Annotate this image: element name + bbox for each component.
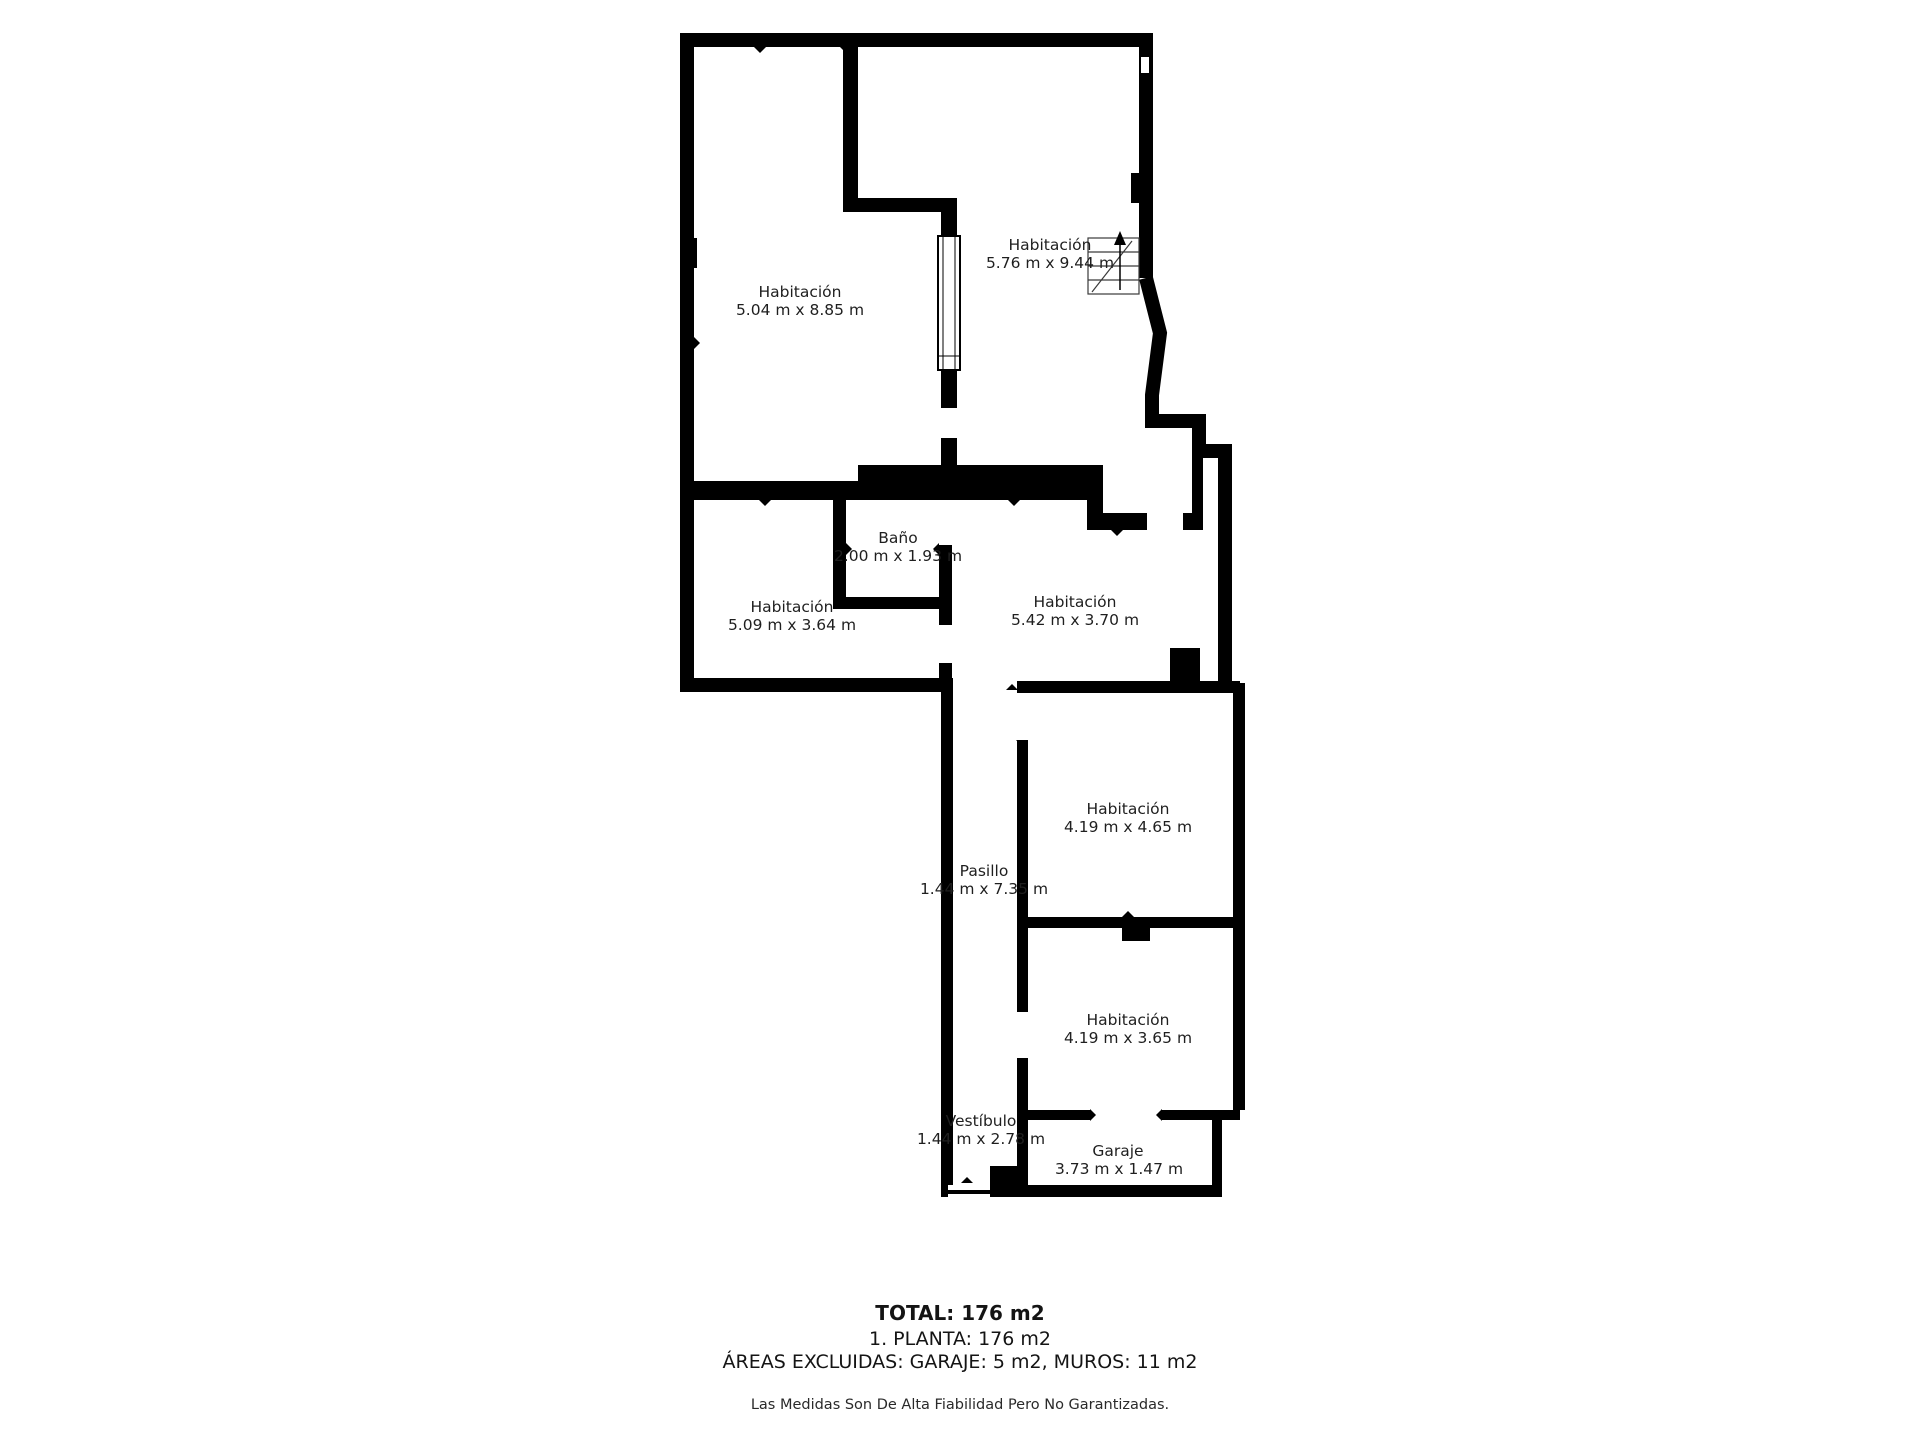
wall-segment bbox=[1017, 740, 1028, 1012]
summary-planta: 1. PLANTA: 176 m2 bbox=[0, 1328, 1920, 1352]
room-label-bano-name: Baño bbox=[878, 529, 917, 547]
door-tick bbox=[1006, 684, 1018, 690]
room-label-bano-dims: 2.00 m x 1.93 m bbox=[834, 547, 962, 565]
door-tick bbox=[1111, 530, 1123, 536]
room-label-garaje-name: Garaje bbox=[1092, 1142, 1143, 1160]
wall-segment bbox=[843, 33, 858, 212]
door-tick bbox=[754, 47, 766, 53]
wall-segment bbox=[858, 465, 1103, 481]
wall-zigzag bbox=[1146, 278, 1225, 690]
door-tick bbox=[1008, 500, 1020, 506]
wall-segment bbox=[1017, 681, 1240, 693]
room-label-hab-top-right-dims: 5.76 m x 9.44 m bbox=[986, 254, 1114, 272]
entry-door-leaf bbox=[948, 1190, 990, 1194]
room-label-hab-right-upper-name: Habitación bbox=[1086, 800, 1169, 818]
wall-segment bbox=[680, 678, 941, 692]
room-label-hab-right-upper-dims: 4.19 m x 4.65 m bbox=[1064, 818, 1192, 836]
wall-door-jamb bbox=[1122, 928, 1150, 941]
room-label-vestibulo-name: Vestíbulo bbox=[946, 1112, 1017, 1130]
wall-segment bbox=[1192, 451, 1203, 530]
window bbox=[938, 236, 960, 370]
window-frame bbox=[938, 236, 960, 370]
floor-plan-svg: Habitación 5.04 m x 8.85 m Habitación 5.… bbox=[0, 0, 1920, 1440]
wall-segment bbox=[680, 33, 1153, 47]
room-label-hab-right-lower-dims: 4.19 m x 3.65 m bbox=[1064, 1029, 1192, 1047]
wall-pillar bbox=[680, 238, 697, 268]
room-label-garaje-dims: 3.73 m x 1.47 m bbox=[1055, 1160, 1183, 1178]
wall-notch bbox=[1141, 57, 1149, 73]
room-label-hab-mid-center-name: Habitación bbox=[1033, 593, 1116, 611]
wall-segment bbox=[843, 198, 957, 212]
wall-segment bbox=[1233, 683, 1245, 1110]
room-label-hab-right-lower-name: Habitación bbox=[1086, 1011, 1169, 1029]
room-label-hab-mid-center-dims: 5.42 m x 3.70 m bbox=[1011, 611, 1139, 629]
wall-segment bbox=[833, 597, 951, 609]
door-tick bbox=[1156, 1109, 1162, 1121]
summary-block: TOTAL: 176 m2 1. PLANTA: 176 m2 ÁREAS EX… bbox=[0, 1301, 1920, 1415]
wall-segment bbox=[941, 212, 957, 236]
door-tick bbox=[1122, 911, 1134, 917]
room-label-hab-mid-left-dims: 5.09 m x 3.64 m bbox=[728, 616, 856, 634]
wall-segment bbox=[1028, 917, 1233, 928]
room-label-hab-top-left-name: Habitación bbox=[758, 283, 841, 301]
wall-segment bbox=[1087, 481, 1103, 530]
wall-pillar bbox=[1170, 648, 1200, 683]
door-tick bbox=[961, 1177, 973, 1183]
wall-segment bbox=[1103, 513, 1147, 530]
door-tick bbox=[759, 500, 771, 506]
wall-segment bbox=[680, 33, 694, 692]
wall-segment bbox=[1162, 1110, 1240, 1120]
wall-segment bbox=[941, 370, 957, 408]
floorplan-page: { "floorplan": { "rooms": { "hab_top_lef… bbox=[0, 0, 1920, 1440]
room-label-hab-mid-left-name: Habitación bbox=[750, 598, 833, 616]
door-tick bbox=[694, 337, 700, 349]
room-labels: Habitación 5.04 m x 8.85 m Habitación 5.… bbox=[728, 236, 1192, 1178]
wall-segment bbox=[1027, 1110, 1090, 1120]
room-label-hab-top-left-dims: 5.04 m x 8.85 m bbox=[736, 301, 864, 319]
room-label-hab-top-right-name: Habitación bbox=[1008, 236, 1091, 254]
door-tick bbox=[1090, 1109, 1096, 1121]
room-label-pasillo-name: Pasillo bbox=[960, 862, 1009, 880]
summary-disclaimer: Las Medidas Son De Alta Fiabilidad Pero … bbox=[0, 1397, 1920, 1415]
room-label-pasillo-dims: 1.44 m x 7.35 m bbox=[920, 880, 1048, 898]
room-label-vestibulo-dims: 1.44 m x 2.78 m bbox=[917, 1130, 1045, 1148]
wall-segment bbox=[1017, 1058, 1028, 1170]
summary-excluded-areas: ÁREAS EXCLUIDAS: GARAJE: 5 m2, MUROS: 11… bbox=[0, 1351, 1920, 1375]
wall-segment bbox=[680, 481, 1103, 500]
wall-jut bbox=[1131, 173, 1145, 203]
summary-total: TOTAL: 176 m2 bbox=[0, 1301, 1920, 1326]
